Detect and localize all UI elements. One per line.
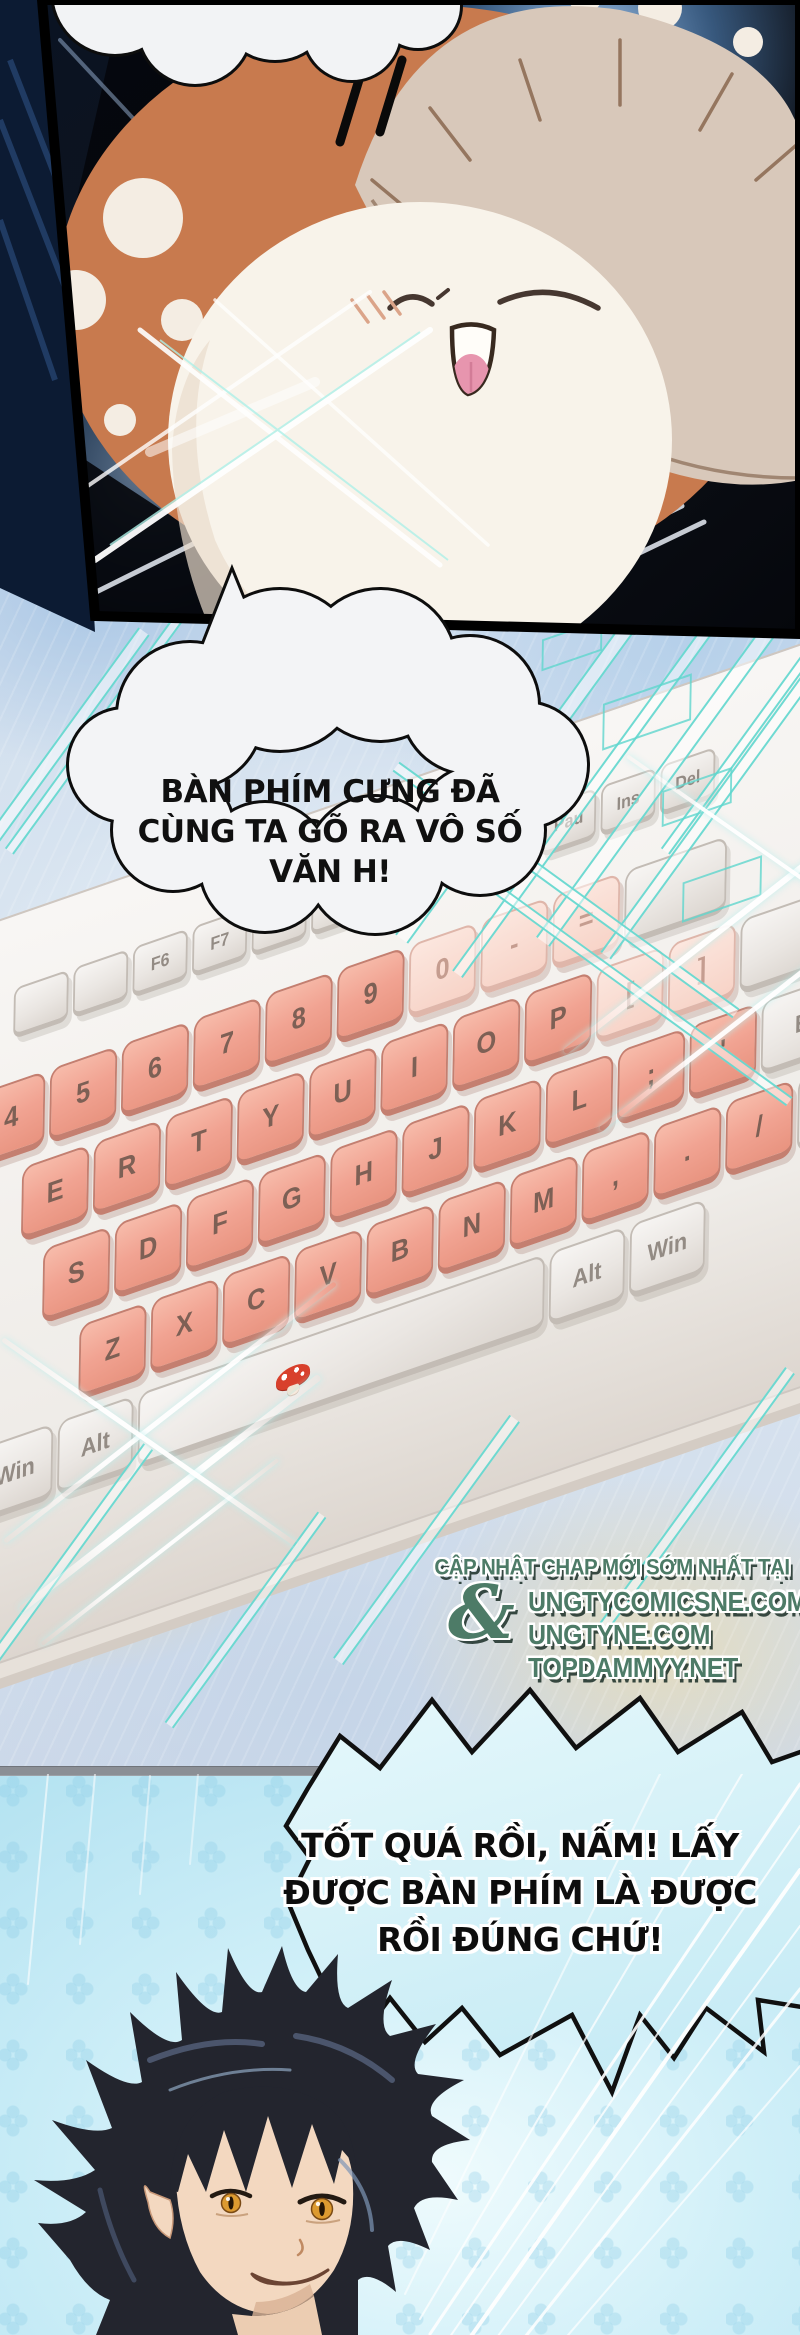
watermark-site-link: UNGTYNE.COM [528,1619,800,1652]
speech-bubble-cloud-text: BÀN PHÍM CƯNG ĐÃ CÙNG TA GÕ RA VÔ SỐ VĂN… [110,772,550,892]
watermark-site-link: TOPDAMMYY.NET [528,1652,800,1685]
dialogue-line: VĂN H! [110,852,550,892]
dialogue-line: CÙNG TA GÕ RA VÔ SỐ [110,812,550,852]
speech-bubble-spiky-text: TỐT QUÁ RỒI, NẤM! LẤY ĐƯỢC BÀN PHÍM LÀ Đ… [250,1822,790,1963]
watermark-sites: UNGTYCOMICSNE.COM UNGTYNE.COM TOPDAMMYY.… [528,1586,800,1685]
dialogue-line: TỐT QUÁ RỒI, NẤM! LẤY [250,1822,790,1869]
watermark-site-link: UNGTYCOMICSNE.COM [528,1586,800,1619]
watermark-ampersand: & [448,1576,515,1650]
dialogue-line: RỒI ĐÚNG CHỨ! [250,1916,790,1963]
dialogue-line: ĐƯỢC BÀN PHÍM LÀ ĐƯỢC [250,1869,790,1916]
man-character [0,1940,560,2335]
dialogue-line: BÀN PHÍM CƯNG ĐÃ [110,772,550,812]
comic-page: F6 F7 Pau Ins Del 4 5 6 7 8 9 0 - = [0,0,800,2335]
speech-bubble-cloud [25,545,605,955]
